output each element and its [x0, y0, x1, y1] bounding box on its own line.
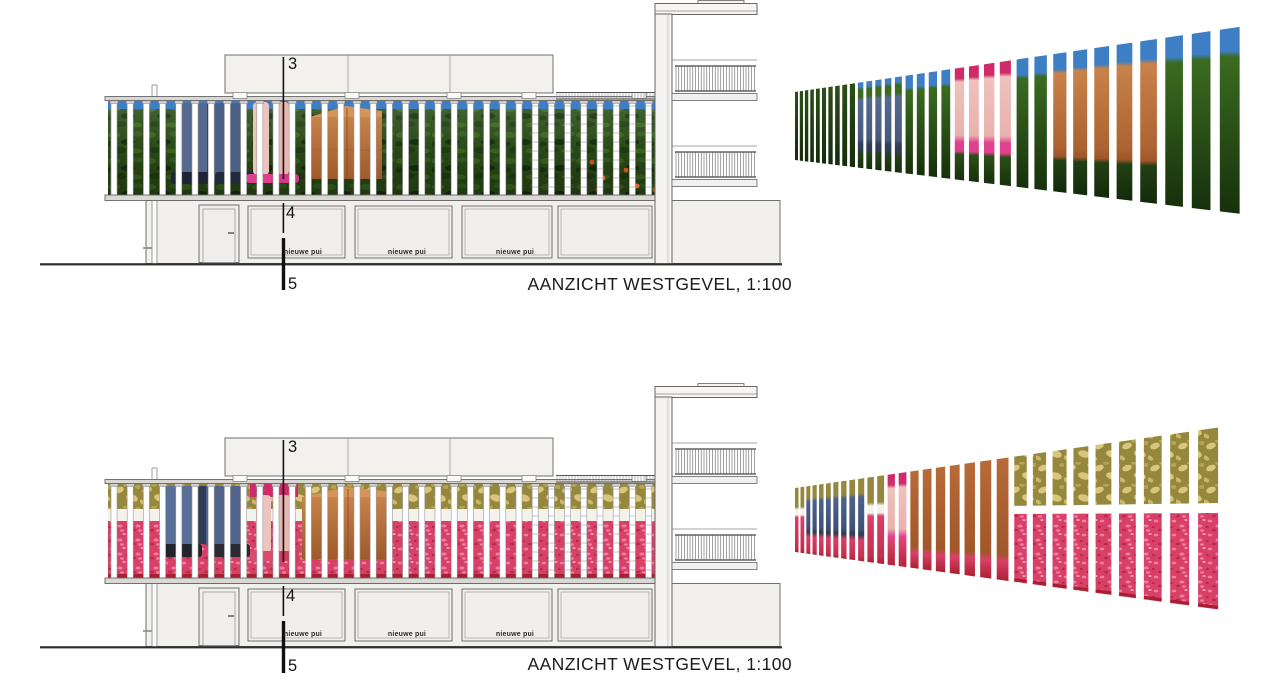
elevation-summer — [40, 1, 782, 291]
elevation-drawings-canvas — [0, 0, 1280, 700]
slat-perspective-interior — [795, 428, 1218, 610]
slat-perspective-summer — [795, 27, 1240, 214]
section-marker-3: 3 — [288, 56, 297, 73]
panel-label-nieuwe-pui: nieuwe pui — [362, 249, 452, 256]
drawing-sheet: 3 4 5 3 4 5 nieuwe pui nieuwe pui nieuwe… — [0, 0, 1280, 700]
caption-top-elevation: AANZICHT WESTGEVEL, 1:100 — [528, 274, 792, 295]
section-marker-5: 5 — [288, 276, 297, 293]
section-marker-5: 5 — [288, 658, 297, 675]
section-marker-4: 4 — [286, 205, 295, 222]
panel-label-nieuwe-pui: nieuwe pui — [470, 631, 560, 638]
panel-label-nieuwe-pui: nieuwe pui — [470, 249, 560, 256]
panel-label-nieuwe-pui: nieuwe pui — [258, 631, 348, 638]
elevation-interior — [40, 384, 782, 674]
panel-label-nieuwe-pui: nieuwe pui — [258, 249, 348, 256]
caption-bottom-elevation: AANZICHT WESTGEVEL, 1:100 — [528, 654, 792, 675]
photo-slat-band-interior — [108, 483, 658, 579]
section-marker-4: 4 — [286, 588, 295, 605]
photo-slat-band-summer — [108, 100, 658, 196]
panel-label-nieuwe-pui: nieuwe pui — [362, 631, 452, 638]
section-marker-3: 3 — [288, 439, 297, 456]
